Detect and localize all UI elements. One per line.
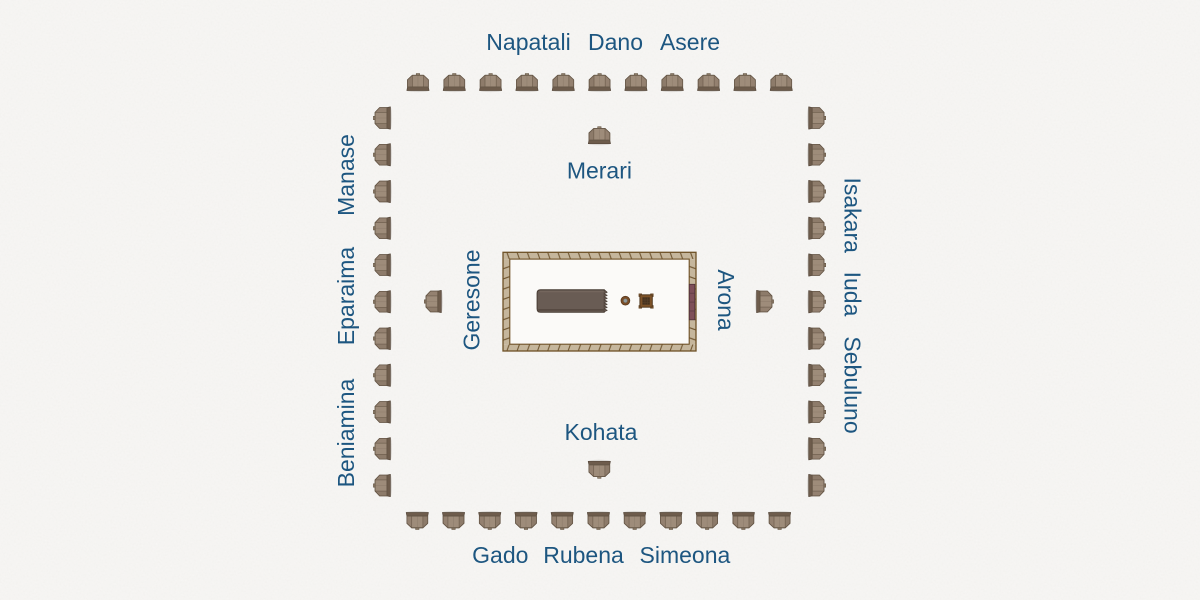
svg-text:Merari: Merari [567, 158, 632, 184]
svg-text:Napatali: Napatali [486, 29, 570, 55]
svg-text:Sebuluno: Sebuluno [839, 336, 865, 433]
svg-text:Rubena: Rubena [543, 542, 624, 568]
svg-text:Iuda: Iuda [839, 272, 865, 317]
svg-text:Beniamina: Beniamina [333, 378, 359, 487]
svg-text:Simeona: Simeona [640, 542, 731, 568]
svg-text:Kohata: Kohata [565, 419, 638, 445]
svg-text:Gado: Gado [472, 542, 528, 568]
svg-text:Manase: Manase [333, 134, 359, 216]
svg-text:Geresone: Geresone [459, 249, 485, 350]
svg-text:Isakara: Isakara [839, 177, 865, 253]
svg-text:Asere: Asere [660, 29, 720, 55]
svg-text:Eparaima: Eparaima [333, 247, 359, 346]
svg-text:Dano: Dano [588, 29, 643, 55]
svg-text:Arona: Arona [713, 269, 739, 331]
